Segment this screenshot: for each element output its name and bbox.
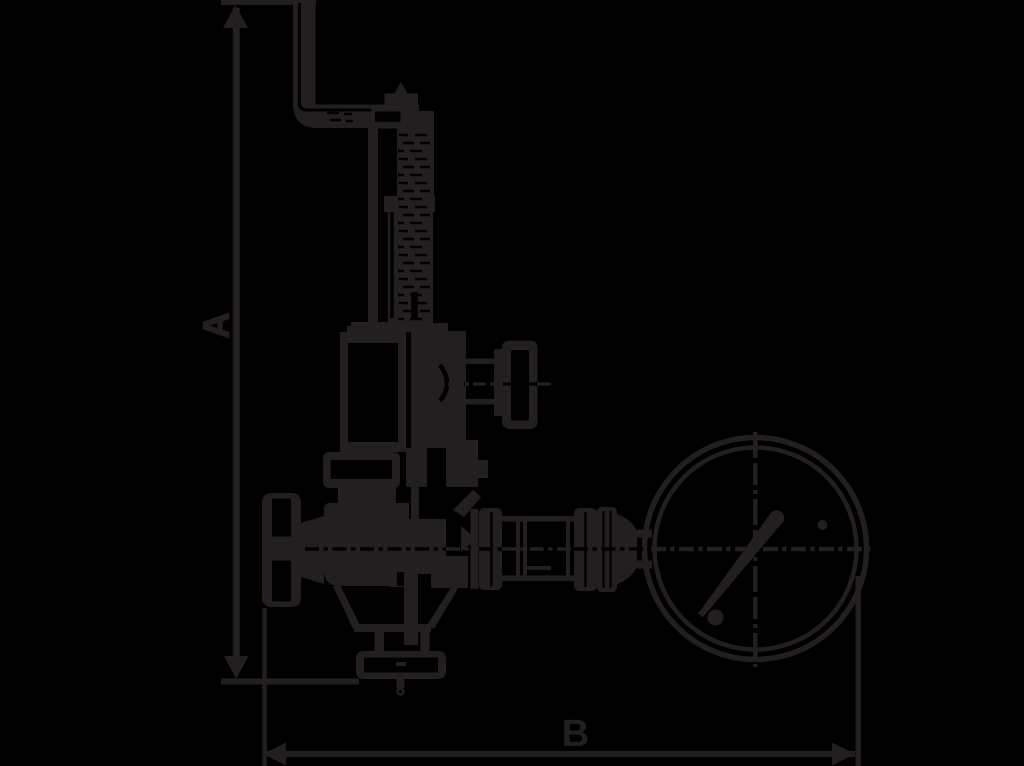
svg-text:A: A [196, 313, 237, 339]
svg-text:B: B [562, 713, 589, 755]
